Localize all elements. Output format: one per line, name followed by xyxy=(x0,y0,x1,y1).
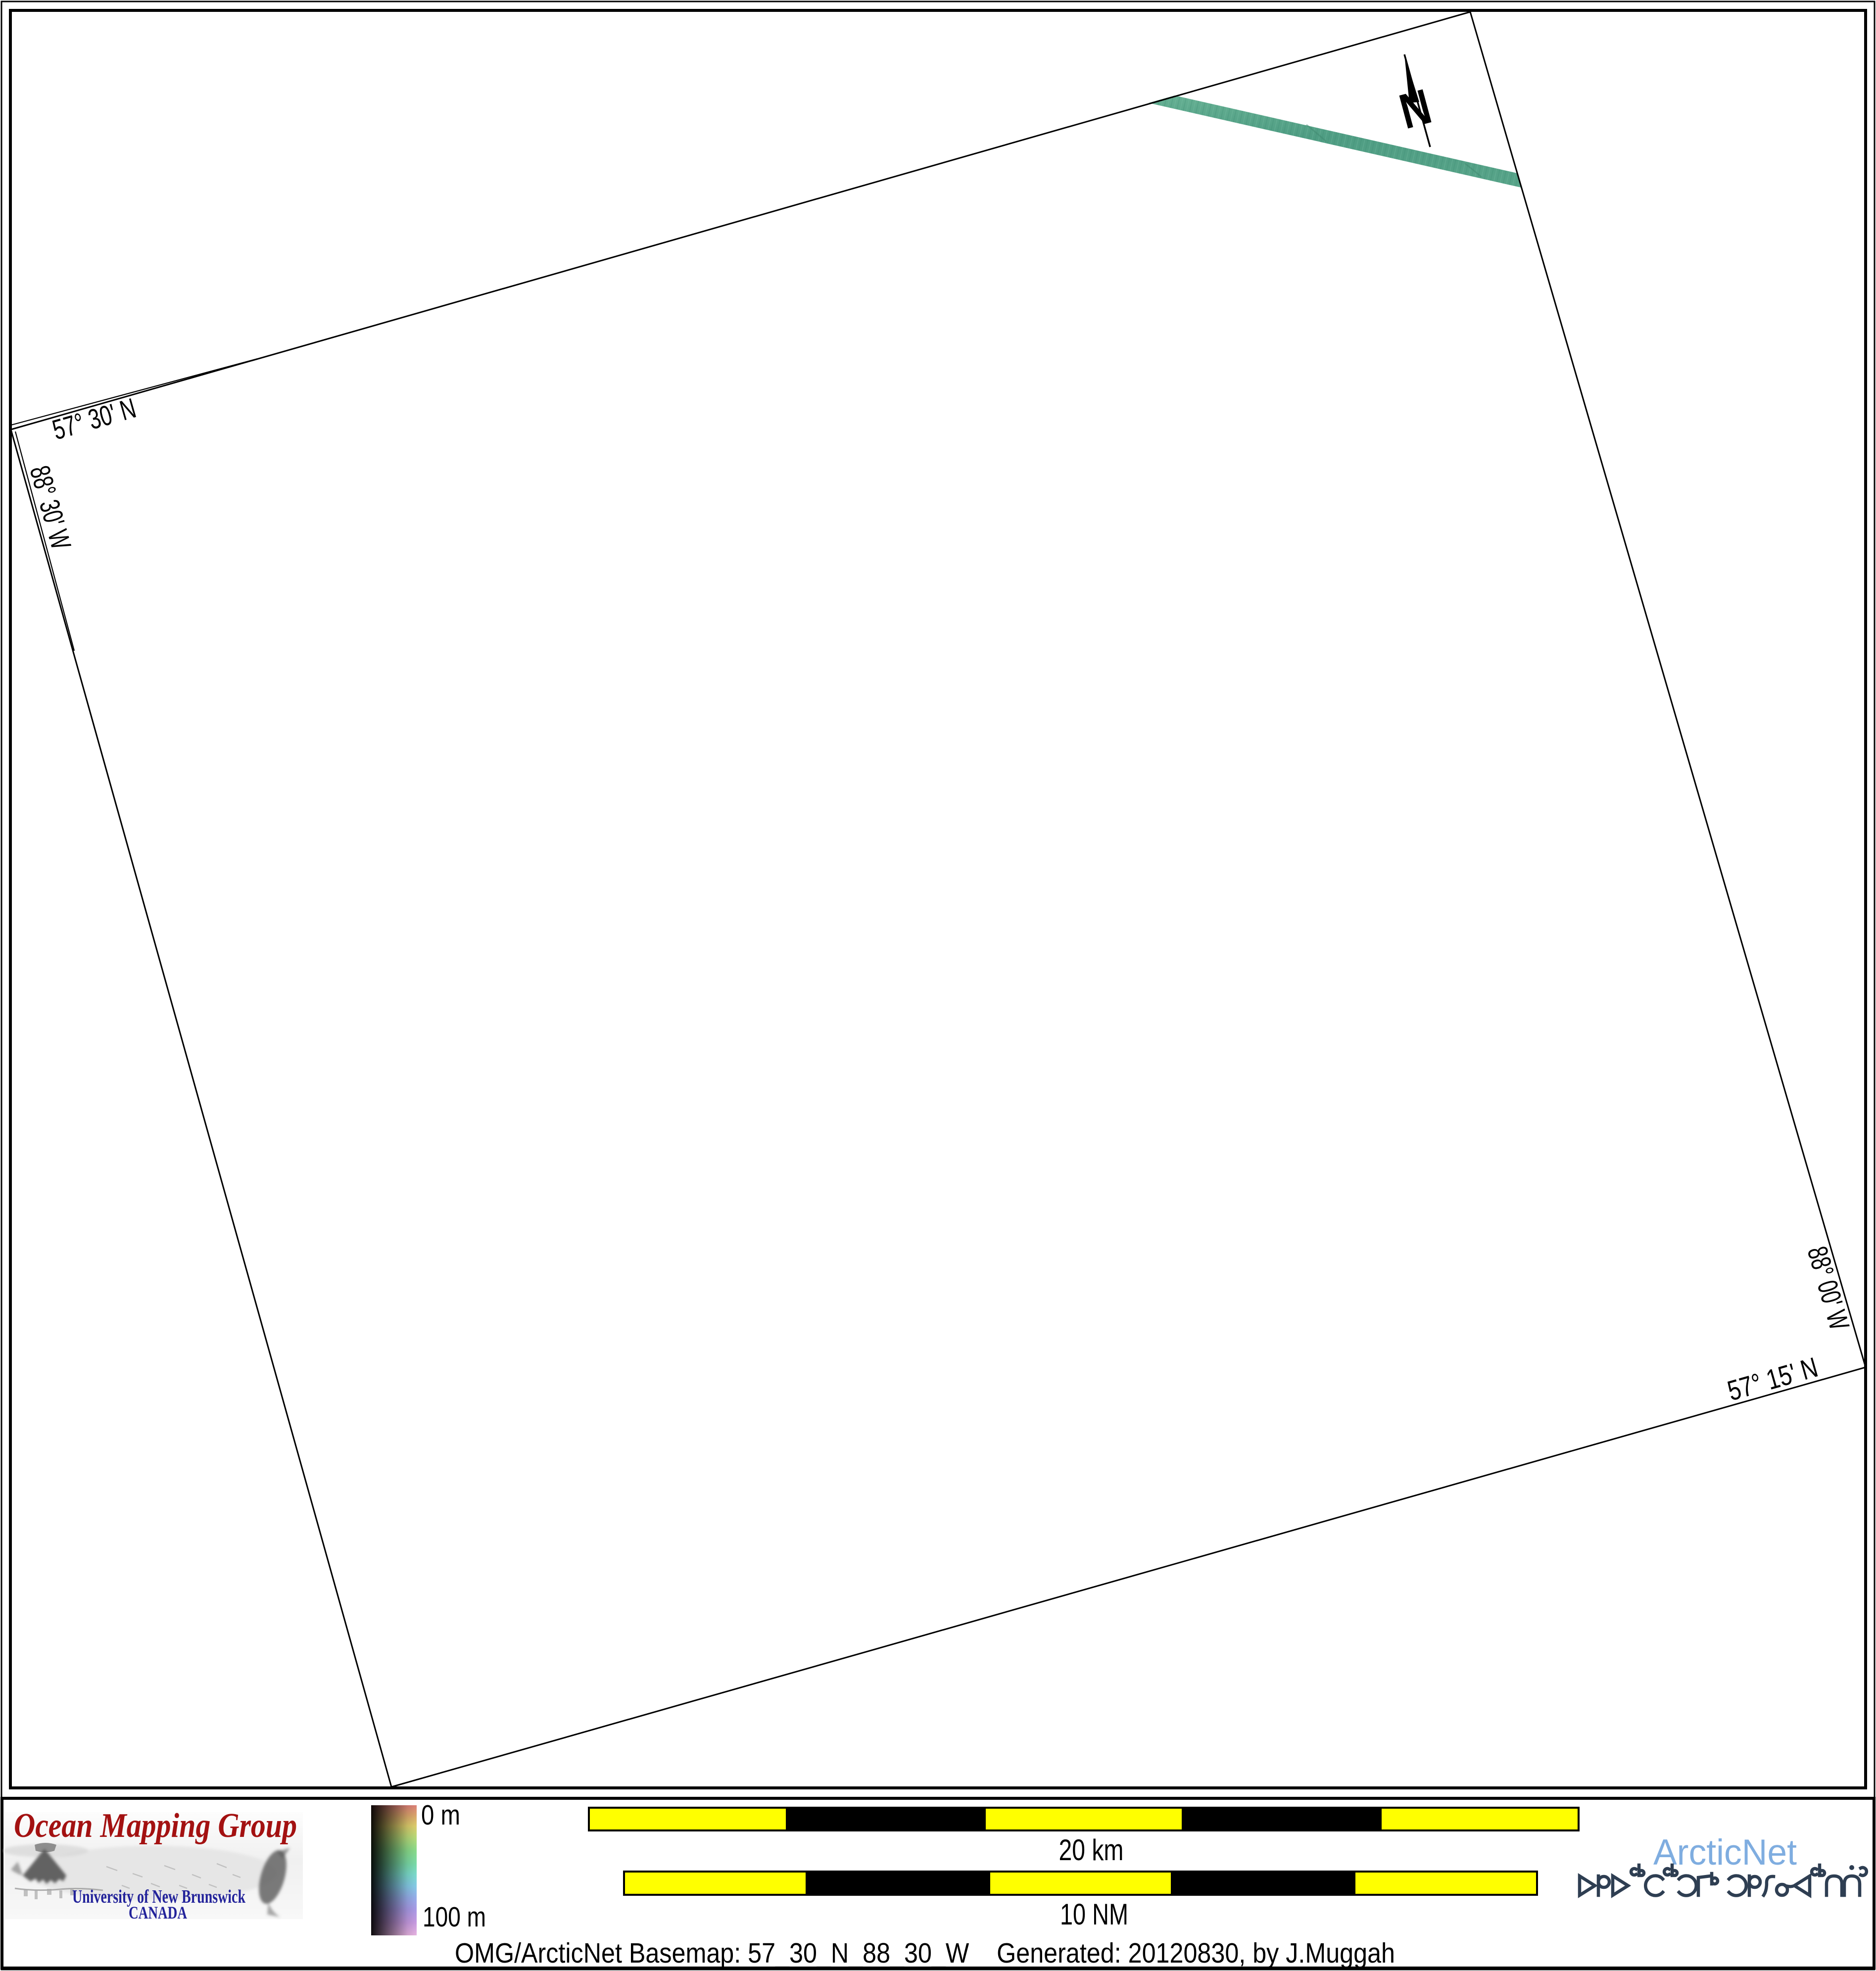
svg-text:20 km: 20 km xyxy=(1059,1833,1124,1867)
svg-text:Ocean Mapping Group: Ocean Mapping Group xyxy=(14,1807,297,1845)
svg-text:10 NM: 10 NM xyxy=(1060,1898,1128,1931)
svg-text:OMG/ArcticNet Basemap: 57_30_N: OMG/ArcticNet Basemap: 57_30_N_88_30_W G… xyxy=(455,1937,1395,1969)
svg-text:CANADA: CANADA xyxy=(129,1903,187,1923)
svg-text:0 m: 0 m xyxy=(421,1799,460,1831)
svg-text:ArcticNet: ArcticNet xyxy=(1653,1832,1797,1873)
svg-text:100 m: 100 m xyxy=(423,1901,486,1933)
